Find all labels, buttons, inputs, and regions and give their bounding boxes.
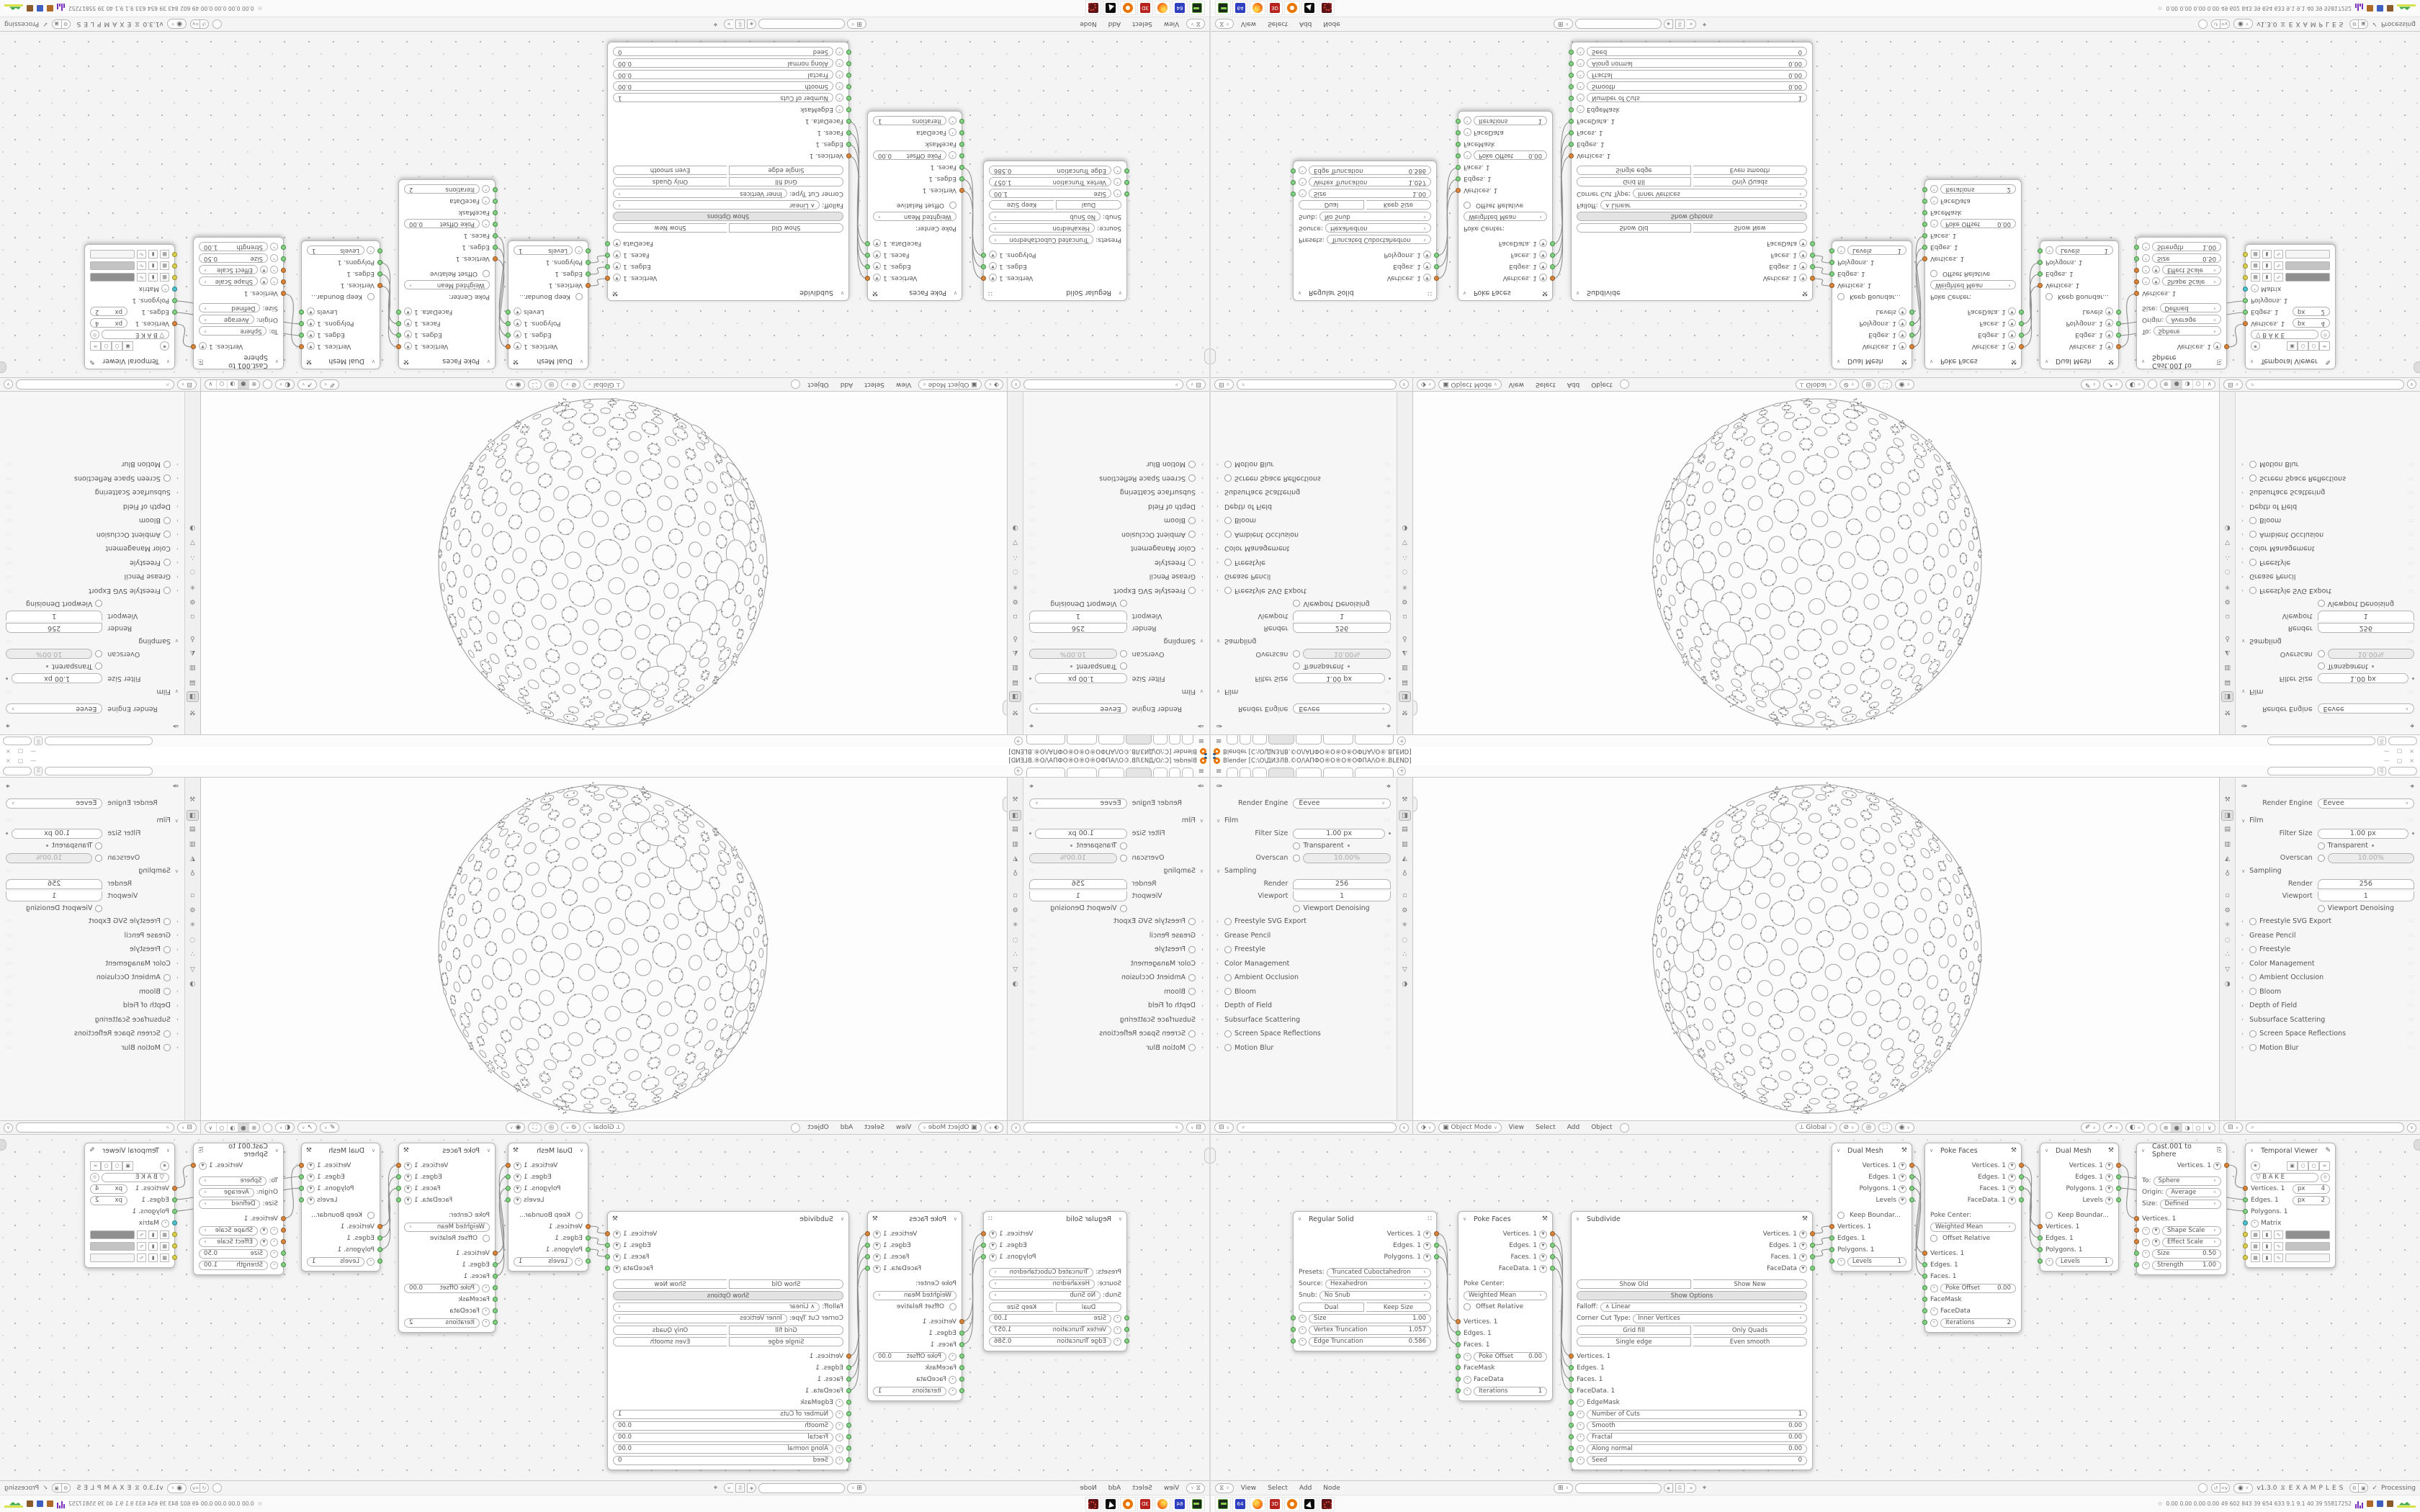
orbit-icon[interactable]: ◎ (90, 1173, 99, 1182)
input-socket[interactable] (846, 1446, 851, 1451)
viewport-menu-add[interactable]: Add (836, 1124, 857, 1131)
collapsed-section-16[interactable]: ›Screen Space Reflections∷∷ (2241, 1027, 2414, 1041)
value-field[interactable]: Vertex Truncation1.057 (1309, 178, 1431, 187)
node-header-icon[interactable]: ⚒ (1802, 289, 1808, 297)
node-poke-faces-a[interactable]: ∨Poke Faces⚒Vertices. 1▼Edges. 1▼Faces. … (1458, 1211, 1553, 1401)
node-editor-type-button[interactable]: ⧖∨ (1215, 19, 1234, 30)
firefox-app-icon[interactable] (1250, 1497, 1265, 1511)
value-field[interactable]: 1 (1293, 611, 1390, 621)
properties-tab-icon-6[interactable]: ▫ (1399, 611, 1411, 621)
properties-tab-icon-11[interactable]: ▽ (2221, 965, 2233, 976)
properties-tab-icon-3[interactable]: ▥ (187, 840, 199, 850)
output-dropdown-icon[interactable]: ▼ (1539, 1265, 1547, 1273)
toolbar-toggle-handle[interactable] (1003, 796, 1008, 812)
value-field[interactable]: Size1.00 (989, 189, 1111, 199)
set-value-icon[interactable]: ‣ (835, 60, 843, 68)
input-socket[interactable] (1922, 1251, 1927, 1256)
input-socket[interactable] (1456, 165, 1461, 170)
properties-tab-icon-5[interactable]: ♁ (2221, 869, 2233, 880)
select-field[interactable]: Effect Scale∨ (199, 266, 258, 275)
close-button[interactable]: × (6, 757, 11, 764)
output-socket[interactable] (2019, 1174, 2024, 1179)
node-header[interactable]: ∨Poke Faces⚒ (399, 354, 495, 369)
collapsed-section-15[interactable]: ›Subsurface Scattering∷∷ (2241, 485, 2414, 500)
set-value-icon[interactable]: ‣ (2045, 247, 2053, 255)
options-button[interactable]: ∨ (4, 380, 13, 390)
value-field[interactable]: Poke Offset0.00 (404, 220, 480, 229)
section-film[interactable]: ∨Film∷∷ (1029, 685, 1204, 698)
node-header[interactable]: ∨Subdivide⚒ (608, 1212, 848, 1226)
viewport-menu-view[interactable]: View (1505, 381, 1528, 388)
input-socket[interactable] (959, 142, 964, 147)
collapsed-section-10[interactable]: ›Freestyle∷∷ (2241, 942, 2414, 957)
properties-tab-icon-9[interactable]: ◌ (1009, 567, 1021, 577)
value-field[interactable]: 256 (1293, 624, 1390, 634)
set-value-icon[interactable]: ‣ (835, 48, 843, 56)
output-socket[interactable] (1810, 264, 1815, 269)
ramp-curve-icon[interactable]: ∿ (2274, 1242, 2283, 1251)
select-field[interactable]: ∧ Linear∨ (613, 201, 820, 210)
output-socket[interactable] (2116, 1186, 2121, 1191)
collapsed-section-10[interactable]: ›Freestyle∷∷ (6, 942, 179, 957)
input-socket[interactable] (2134, 268, 2139, 273)
collapsed-section-15[interactable]: ›Subsurface Scattering∷∷ (6, 1013, 179, 1027)
input-socket[interactable] (493, 1262, 498, 1267)
input-socket[interactable] (1291, 168, 1296, 174)
input-socket[interactable] (846, 1423, 851, 1428)
set-value-icon[interactable]: ‣ (2142, 1250, 2150, 1258)
input-socket[interactable] (1922, 1320, 1927, 1325)
collapsed-section-9[interactable]: ›Grease Pencil∷∷ (1216, 570, 1391, 584)
properties-tab-icon-2[interactable]: ▤ (1399, 677, 1411, 688)
ramp-stop-icon[interactable]: ▮ (148, 1254, 158, 1262)
red-gear-app-icon[interactable] (1319, 1497, 1335, 1511)
output-socket[interactable] (865, 1254, 870, 1259)
collapsed-section-16[interactable]: ›Screen Space Reflections∷∷ (1216, 1027, 1391, 1041)
node-tree-name-input[interactable] (1575, 19, 1662, 30)
firefox-app-icon[interactable] (1155, 1, 1170, 16)
input-socket[interactable] (959, 130, 964, 135)
collapsed-section-17[interactable]: ›Motion Blur∷∷ (2241, 457, 2414, 472)
node-checkbox-circle[interactable] (1837, 1212, 1845, 1219)
viewport-menu-view[interactable]: View (1505, 1124, 1528, 1131)
collapse-caret-icon[interactable]: ∨ (1837, 359, 1845, 364)
select-field[interactable]: No Snub∨ (989, 212, 1101, 222)
output-socket[interactable] (981, 276, 986, 281)
input-socket[interactable] (1569, 96, 1574, 101)
input-socket[interactable] (959, 188, 964, 193)
output-socket[interactable] (1434, 253, 1439, 258)
animate-dot[interactable] (2372, 665, 2374, 667)
output-socket[interactable] (1810, 1254, 1815, 1259)
output-dropdown-icon[interactable]: ▼ (307, 308, 315, 316)
section-toggle-circle[interactable] (163, 517, 171, 524)
output-dropdown-icon[interactable]: ▼ (404, 1174, 412, 1182)
ramp-flip-icon[interactable]: ▦ (2251, 273, 2260, 282)
workspace-tab-5[interactable] (1296, 768, 1322, 777)
value-field[interactable]: Iterations1 (873, 1387, 946, 1396)
output-dropdown-icon[interactable]: ▼ (873, 263, 881, 271)
editor-type-button[interactable]: ⊟∨ (2223, 1122, 2243, 1133)
bw-graphics-app-icon[interactable] (1103, 1497, 1119, 1511)
output-dropdown-icon[interactable]: ▼ (1899, 320, 1906, 328)
output-socket[interactable] (981, 1231, 986, 1236)
input-socket[interactable] (2243, 298, 2248, 303)
checkbox-circle[interactable] (1293, 855, 1300, 862)
select-field[interactable]: Weighted Mean∨ (1930, 281, 2016, 290)
set-value-icon[interactable]: ‣ (835, 71, 843, 79)
input-socket[interactable] (172, 321, 177, 326)
output-socket[interactable] (1909, 344, 1914, 349)
scene-selector-field[interactable] (2267, 737, 2375, 745)
input-socket[interactable] (586, 1247, 591, 1252)
output-socket[interactable] (1550, 253, 1555, 258)
input-socket[interactable] (493, 1297, 498, 1302)
node-checkbox-circle[interactable] (2045, 1212, 2053, 1219)
select-field[interactable]: Shape Scale∨ (2162, 1226, 2221, 1236)
input-socket[interactable] (172, 287, 177, 292)
set-value-icon[interactable]: ‣ (1464, 152, 1471, 160)
snap-grid-icon[interactable]: ⌗∨ (2220, 1483, 2230, 1493)
section-toggle-circle[interactable] (1224, 918, 1232, 925)
collapsed-section-11[interactable]: ›Color Management∷∷ (6, 957, 179, 971)
section-toggle-circle[interactable] (1224, 1044, 1232, 1051)
properties-tab-icon-0[interactable]: ⚒ (187, 795, 199, 806)
section-film[interactable]: ∨Film∷∷ (6, 685, 179, 698)
close-button[interactable]: × (2409, 757, 2414, 764)
output-dropdown-icon[interactable]: ▼ (1899, 331, 1906, 339)
red-gear-app-icon[interactable] (1319, 1, 1335, 16)
node-menu-select[interactable]: Select (1263, 21, 1292, 28)
animate-dot[interactable] (6, 678, 8, 680)
input-socket[interactable] (1569, 50, 1574, 55)
collapsed-section-11[interactable]: ›Color Management∷∷ (1216, 541, 1391, 556)
collapsed-section-15[interactable]: ›Subsurface Scattering∷∷ (1029, 1013, 1204, 1027)
input-socket[interactable] (493, 1285, 498, 1290)
output-dropdown-icon[interactable]: ▼ (1539, 274, 1547, 282)
set-value-icon[interactable]: ‣ (482, 186, 490, 194)
select-field[interactable]: ∧ Linear∨ (1600, 1302, 1807, 1312)
value-field[interactable]: Edge Truncation0.586 (1309, 166, 1431, 176)
checkbox-circle[interactable] (95, 651, 102, 658)
input-socket[interactable] (959, 1377, 964, 1382)
node-header-icon[interactable]: ⚒ (403, 358, 409, 365)
value-field[interactable]: Size1.00 (989, 1314, 1111, 1323)
value-field[interactable]: Poke Offset0.00 (873, 1352, 946, 1362)
select-field[interactable]: Inner Vertices∨ (1633, 1314, 1807, 1323)
output-dropdown-icon[interactable]: ▼ (514, 1162, 521, 1170)
input-socket[interactable] (1569, 1411, 1574, 1416)
workspace-tab-3[interactable] (1252, 735, 1267, 744)
input-socket[interactable] (281, 1262, 286, 1267)
collapsed-section-12[interactable]: ›Ambient Occlusion∷∷ (1029, 971, 1204, 985)
button-dual[interactable]: Dual (1299, 1302, 1364, 1312)
output-socket[interactable] (2019, 1197, 2024, 1202)
editor-type-button[interactable]: ⊟∨ (1214, 379, 1234, 390)
value-field[interactable]: 1.00 px (2318, 674, 2408, 684)
node-checkbox-circle[interactable] (949, 1303, 956, 1310)
output-dropdown-icon[interactable]: ▼ (2105, 1174, 2113, 1182)
empty-circle-button[interactable] (2198, 19, 2208, 29)
properties-tab-icon-3[interactable]: ▥ (1399, 662, 1411, 673)
blender-app-icon[interactable] (1284, 1, 1300, 16)
input-socket[interactable] (586, 248, 591, 253)
animate-dot[interactable] (1029, 678, 1031, 680)
properties-search-input[interactable]: ⌕ (2246, 379, 2404, 390)
ramp-gradient-bar[interactable] (90, 250, 135, 258)
set-value-icon[interactable]: ‣ (835, 1399, 843, 1407)
properties-tab-icon-2[interactable]: ▤ (1009, 677, 1021, 688)
properties-tab-icon-7[interactable]: ⚙ (187, 596, 199, 607)
output-dropdown-icon[interactable]: ▼ (404, 331, 412, 339)
node-header-icon[interactable]: ✎ (2325, 1147, 2331, 1154)
value-field[interactable]: 256 (1029, 879, 1126, 889)
ramp-gradient-bar[interactable] (90, 1242, 135, 1251)
blender-app-icon[interactable] (1120, 1, 1136, 16)
input-socket[interactable] (846, 142, 851, 147)
eye-icon[interactable]: ◉ (2251, 1161, 2260, 1171)
input-socket[interactable] (2134, 1251, 2139, 1256)
viewer-mode-0[interactable]: ▣ (122, 1161, 133, 1171)
output-dropdown-icon[interactable]: ▼ (873, 240, 881, 248)
select-field[interactable]: Truncated Cuboctahedron∨ (1327, 1268, 1431, 1277)
snap-button-1[interactable]: ◎ (544, 1122, 559, 1133)
input-socket[interactable] (1922, 210, 1927, 215)
section-toggle-circle[interactable] (1224, 988, 1232, 995)
gizmo-icon-1[interactable]: ▣ (2359, 19, 2368, 29)
properties-tab-icon-0[interactable]: ⚒ (2221, 795, 2233, 806)
editor-type-button[interactable]: ⊟∨ (1186, 1122, 1206, 1133)
node-checkbox-circle[interactable] (483, 1235, 490, 1242)
workspace-tab-1[interactable] (1227, 735, 1238, 744)
output-socket[interactable] (2116, 344, 2121, 349)
collapsed-section-9[interactable]: ›Grease Pencil∷∷ (1216, 929, 1391, 943)
output-socket[interactable] (1909, 310, 1914, 315)
copy-icon[interactable]: ⎘ (1675, 19, 1685, 29)
node-editor-type-button[interactable]: ⧖∨ (1215, 1483, 1234, 1493)
input-socket[interactable] (1124, 192, 1129, 197)
input-socket[interactable] (959, 176, 964, 181)
ramp-stop-icon[interactable]: ▮ (2262, 250, 2272, 258)
button-show-options[interactable]: Show Options (613, 212, 843, 222)
value-field[interactable]: 256 (6, 879, 102, 889)
node-header-icon[interactable]: ⚒ (1901, 358, 1907, 365)
floppy-64-app-icon[interactable]: 64 (1232, 1497, 1248, 1511)
section-toggle-circle[interactable] (1188, 918, 1196, 925)
snap-grid-icon[interactable]: ⌗∨ (190, 1483, 200, 1493)
output-socket[interactable] (2224, 1163, 2229, 1168)
set-value-icon[interactable]: ‣ (2142, 1261, 2150, 1269)
input-socket[interactable] (1569, 1423, 1574, 1428)
input-socket[interactable] (1922, 1285, 1927, 1290)
properties-tab-icon-1[interactable]: ◨ (187, 810, 199, 821)
input-socket[interactable] (846, 107, 851, 112)
unlink-icon[interactable]: × (724, 19, 733, 29)
viewer-mode-2[interactable]: ○ (2308, 342, 2319, 351)
properties-tab-icon-7[interactable]: ⚙ (1399, 596, 1411, 607)
render-engine-select[interactable]: Eevee∨ (6, 704, 102, 714)
set-value-icon[interactable]: ‣ (1113, 1326, 1121, 1334)
input-socket[interactable] (2243, 275, 2248, 280)
input-socket[interactable] (1291, 180, 1296, 185)
collapsed-section-9[interactable]: ›Grease Pencil∷∷ (6, 929, 179, 943)
collapsed-section-13[interactable]: ›Bloom∷∷ (1216, 513, 1391, 528)
value-field[interactable]: Iterations1 (873, 117, 946, 126)
section-film[interactable]: ∨Film∷∷ (1029, 814, 1204, 827)
viewport-editor-type-button[interactable]: ⬗∨ (985, 379, 1003, 390)
input-socket[interactable] (846, 1411, 851, 1416)
node-header[interactable]: ∨Temporal Viewer✎ (2246, 1143, 2335, 1158)
collapsed-section-12[interactable]: ›Ambient Occlusion∷∷ (2241, 971, 2414, 985)
chevron-down-icon[interactable]: ∨ (205, 1123, 216, 1132)
collapse-caret-icon[interactable]: ∨ (271, 1148, 279, 1153)
snap-button-0[interactable]: ⊘∨ (1839, 1122, 1859, 1133)
input-socket[interactable] (1124, 180, 1129, 185)
output-socket[interactable] (299, 333, 304, 338)
shading-3[interactable]: ○ (216, 380, 227, 389)
ramp-flip-icon[interactable]: ▦ (160, 1230, 169, 1239)
editor-type-button[interactable]: ⊟∨ (2223, 379, 2243, 390)
input-socket[interactable] (1922, 1274, 1927, 1279)
value-field[interactable]: Iterations2 (1940, 1318, 2016, 1328)
value-field[interactable]: Levels1 (514, 1257, 573, 1266)
copy-icon[interactable]: ⎘ (735, 19, 745, 29)
output-socket[interactable] (1550, 264, 1555, 269)
set-value-icon[interactable]: ‣ (949, 1387, 956, 1395)
orientation-select[interactable]: ⟂ Global∨ (1796, 379, 1837, 390)
output-socket[interactable] (2224, 344, 2229, 349)
input-socket[interactable] (2038, 271, 2043, 276)
value-field[interactable]: 1.00 px (1035, 829, 1126, 839)
input-socket[interactable] (493, 210, 498, 215)
node-cast-to-sphere[interactable]: ∨Cast.001 to Sphere⎘Vertices. 1▼To:Spher… (193, 1143, 284, 1275)
properties-tab-icon-6[interactable]: ▫ (1399, 891, 1411, 901)
select-field[interactable]: Defined∨ (2160, 1200, 2221, 1209)
value-field[interactable]: Iterations2 (1940, 185, 2016, 194)
node-poke-faces-a[interactable]: ∨Poke Faces⚒Vertices. 1▼Edges. 1▼Faces. … (867, 111, 962, 301)
properties-tab-icon-9[interactable]: ◌ (187, 935, 199, 946)
pin-icon[interactable]: ⌖ (1386, 783, 1391, 791)
properties-tab-icon-1[interactable]: ◨ (2221, 692, 2233, 703)
output-dropdown-icon[interactable]: ▼ (307, 1162, 315, 1170)
node-header[interactable]: ∨Dual Mesh⚒ (508, 354, 588, 369)
set-value-icon[interactable]: ‣ (1577, 71, 1585, 79)
input-socket[interactable] (281, 245, 286, 250)
properties-tab-icon-12[interactable]: ◑ (2221, 979, 2233, 990)
node-dual-mesh-b[interactable]: ∨Dual Mesh⚒Vertices. 1▼Edges. 1▼Polygons… (2040, 1143, 2119, 1272)
input-socket[interactable] (281, 1228, 286, 1233)
set-value-icon[interactable]: ‣ (1113, 1315, 1121, 1323)
workspace-tab-3[interactable] (1252, 768, 1267, 777)
collapse-caret-icon[interactable]: ∨ (483, 1148, 490, 1153)
px-field[interactable]: px2 (2293, 307, 2330, 317)
section-sampling[interactable]: ∨Sampling∷∷ (2241, 864, 2414, 878)
section-sampling[interactable]: ∨Sampling∷∷ (6, 864, 179, 878)
floppy-64-app-icon[interactable]: 64 (1232, 1, 1248, 16)
node-header[interactable]: ∨Dual Mesh⚒ (1832, 1143, 1912, 1158)
output-dropdown-icon[interactable]: ▼ (1899, 343, 1906, 351)
properties-tab-icon-5[interactable]: ♁ (1399, 869, 1411, 880)
viewport-editor-type-button[interactable]: ⬗∨ (985, 1122, 1003, 1133)
input-socket[interactable] (1569, 153, 1574, 158)
node-header-icon[interactable]: ⚒ (2108, 358, 2114, 365)
minimize-button[interactable]: — (2384, 757, 2390, 764)
properties-tab-icon-3[interactable]: ▥ (1399, 840, 1411, 850)
node-temporal-viewer[interactable]: ∨Temporal Viewer✎◉▣○○∞▽ B A K E◎Vertices… (2245, 1143, 2336, 1268)
viewer-mode-1[interactable]: ○ (112, 1161, 122, 1171)
value-field[interactable]: 1 (1029, 891, 1126, 901)
node-dual-mesh-a[interactable]: ∨Dual Mesh⚒Vertices. 1▼Edges. 1▼Polygons… (508, 240, 588, 369)
px-field[interactable]: px2 (2293, 1196, 2330, 1205)
properties-search-input[interactable]: ⌕ (1237, 1122, 1397, 1133)
input-socket[interactable] (959, 1331, 964, 1336)
collapsed-section-15[interactable]: ›Subsurface Scattering∷∷ (2241, 1013, 2414, 1027)
set-value-icon[interactable]: ‣ (835, 1410, 843, 1418)
section-toggle-circle[interactable] (2249, 946, 2257, 953)
viewport-3d[interactable] (200, 392, 1008, 734)
output-dropdown-icon[interactable]: ▼ (873, 1254, 881, 1261)
node-cast-to-sphere[interactable]: ∨Cast.001 to Sphere⎘Vertices. 1▼To:Spher… (2136, 237, 2227, 369)
node-header[interactable]: ∨Cast.001 to Sphere⎘ (2137, 1143, 2226, 1158)
set-value-icon[interactable]: ‣ (1930, 186, 1938, 194)
output-socket[interactable] (1909, 1174, 1914, 1179)
output-dropdown-icon[interactable]: ▼ (989, 1254, 997, 1261)
section-toggle-circle[interactable] (163, 531, 171, 538)
section-film[interactable]: ∨Film∷∷ (1216, 814, 1391, 827)
input-socket[interactable] (846, 1365, 851, 1370)
output-socket[interactable] (299, 321, 304, 326)
node-poke-faces-b[interactable]: ∨Poke Faces⚒Vertices. 1▼Edges. 1▼Faces. … (1924, 179, 2022, 369)
input-socket[interactable] (846, 73, 851, 78)
extra-circle-button[interactable] (1620, 1123, 1629, 1133)
tree-browse-button[interactable]: ⊞∨ (1554, 1483, 1573, 1493)
input-socket[interactable] (281, 268, 286, 273)
properties-tab-icon-4[interactable]: ◭ (187, 854, 199, 865)
viewer-mode-2[interactable]: ○ (101, 1161, 112, 1171)
output-dropdown-icon[interactable]: ▼ (2008, 1185, 2016, 1193)
set-value-icon[interactable]: ‣ (835, 1445, 843, 1453)
viewport-3d[interactable] (1412, 778, 2220, 1120)
set-value-icon[interactable]: ‣ (1577, 94, 1585, 102)
node-dual-mesh-b[interactable]: ∨Dual Mesh⚒Vertices. 1▼Edges. 1▼Polygons… (301, 240, 380, 369)
set-value-icon[interactable]: ‣ (575, 1258, 583, 1266)
ramp-curve-icon[interactable]: ∿ (137, 261, 146, 270)
output-dropdown-icon[interactable]: ▼ (1423, 274, 1431, 282)
ramp-curve-icon[interactable]: ∿ (137, 1230, 146, 1239)
node-header[interactable]: ∨Temporal Viewer✎ (2246, 354, 2335, 369)
input-socket[interactable] (493, 256, 498, 261)
camera-circle-button[interactable] (2148, 1123, 2157, 1133)
set-value-icon[interactable]: ‣ (1930, 1308, 1938, 1315)
collapse-caret-icon[interactable]: ∨ (1837, 1148, 1845, 1153)
input-socket[interactable] (1456, 1342, 1461, 1347)
button-grid-fill[interactable]: Grid fill (1577, 178, 1691, 187)
node-panel-handle[interactable] (1204, 1148, 1209, 1164)
node-checkbox-circle[interactable] (1930, 1235, 1937, 1242)
output-dropdown-icon[interactable]: ▼ (307, 1197, 315, 1205)
node-header-icon[interactable]: ∷ (988, 289, 992, 297)
emulator-app-icon[interactable] (1215, 1, 1231, 16)
input-socket[interactable] (172, 252, 177, 257)
collapsed-section-12[interactable]: ›Ambient Occlusion∷∷ (1216, 528, 1391, 542)
pin-icon[interactable]: ⌖ (6, 783, 10, 791)
pin-icon[interactable]: ⌖ (1386, 722, 1391, 730)
workspace-tab-5[interactable] (1098, 735, 1124, 744)
value-field[interactable]: Size1.00 (1309, 1314, 1431, 1323)
collapsed-section-11[interactable]: ›Color Management∷∷ (1029, 957, 1204, 971)
output-dropdown-icon[interactable]: ▼ (989, 274, 997, 282)
input-socket[interactable] (2134, 291, 2139, 296)
